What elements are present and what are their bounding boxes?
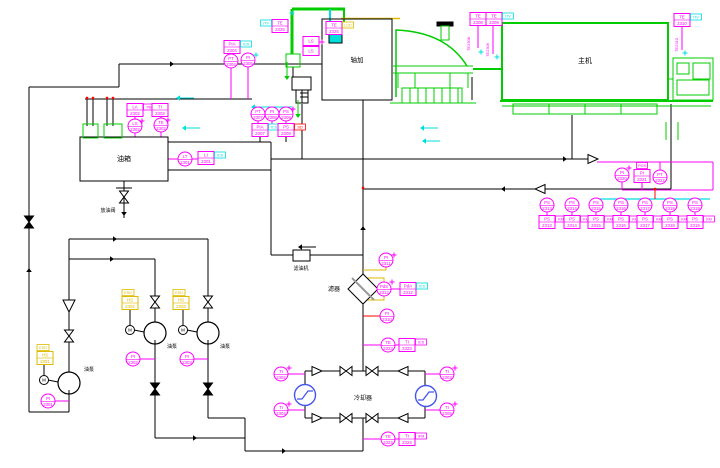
svg-text:PT: PT (228, 56, 234, 61)
instrument-bubble-PI-2301: PI2301 (41, 394, 55, 408)
svg-text:ITV: ITV (505, 15, 511, 19)
heat-exchanger-icon (295, 385, 316, 406)
instrument-bubble-PI-2310: PI2310 (380, 309, 394, 323)
svg-text:2308: 2308 (473, 20, 483, 25)
svg-text:KM: KM (681, 218, 687, 222)
plus-mark (453, 366, 458, 371)
svg-text:2304: 2304 (276, 411, 286, 416)
hand-switch-HS-2301: ESDHS2301 (37, 345, 53, 365)
pipe-line (363, 267, 386, 270)
svg-text:2314: 2314 (567, 223, 577, 228)
label-text: 油泵 (84, 366, 94, 373)
svg-text:2309: 2309 (489, 20, 499, 25)
instrument-box-PS-2309: PS2309SD (278, 124, 306, 137)
instrument-bubble-PT-2304: PT2304 (224, 54, 238, 68)
svg-text:ICS: ICS (418, 341, 425, 345)
svg-text:2324: 2324 (402, 440, 412, 445)
svg-text:PCS: PCS (638, 164, 646, 168)
svg-text:M: M (181, 328, 185, 333)
svg-text:2318: 2318 (665, 206, 675, 211)
svg-text:KM: KM (558, 218, 564, 222)
instrument-box-TI-2302: TI2302 (152, 104, 168, 117)
label-text: 油泵 (220, 343, 230, 350)
plus-mark (390, 280, 395, 285)
svg-text:TE: TE (385, 434, 391, 439)
svg-text:PS: PS (692, 200, 698, 205)
label-text: 油箱 (117, 154, 131, 163)
generator-part (677, 63, 689, 74)
flow-arrow (360, 226, 366, 244)
svg-text:SD: SD (297, 126, 303, 130)
instrument-bubble-TI-2305: TI2305 (440, 403, 454, 417)
shutoff-valve (151, 296, 160, 308)
instrument-box-PI-2321: PI2321PCS (634, 163, 650, 183)
pid-diagram: MMMPT2304PI2305PT2307PI2308PS2309LS2302T… (0, 0, 720, 468)
instrument-box-TE-2308: TE2308 (470, 13, 486, 26)
flow-arrow (420, 125, 438, 131)
svg-text:TE: TE (475, 14, 481, 19)
svg-text:2302: 2302 (276, 375, 286, 380)
svg-text:2307: 2307 (255, 131, 265, 136)
instrument-box-LS: LS (303, 37, 319, 46)
svg-text:2310: 2310 (382, 317, 392, 322)
svg-text:PS: PS (283, 125, 289, 130)
hand-switch-HS-2302: ESDHS2302 (122, 290, 138, 310)
svg-text:PS: PS (667, 200, 673, 205)
svg-text:2313: 2313 (542, 206, 552, 211)
check-valve-icon (398, 414, 408, 423)
plus-mark (479, 50, 484, 55)
instrument-box-TI-2323: TI2323ICS (399, 339, 427, 352)
green-valve-block (286, 54, 300, 67)
svg-text:PI: PI (385, 311, 389, 316)
instrument-box-TE-2326: TE2326LCD (326, 22, 354, 35)
strainer (292, 77, 311, 90)
svg-text:HS: HS (127, 298, 133, 303)
svg-text:PS: PS (642, 217, 648, 222)
flow-arrow (268, 448, 286, 454)
svg-text:TI: TI (405, 340, 409, 345)
instrument-box-PS-2318: PS2318KM (662, 216, 690, 229)
svg-text:PS: PS (593, 200, 599, 205)
label-text: TE2310 (674, 37, 679, 52)
instrument-bubble-TI-2302: TI2302 (274, 367, 288, 381)
shutoff-valve (204, 296, 213, 308)
instrument-bubble-TE-2323: TE2323 (381, 338, 395, 352)
motor-icon: M (179, 326, 188, 335)
shutoff-valve-closed (151, 383, 160, 395)
instrument-bubble-TI-2303: TI2303 (440, 367, 454, 381)
svg-text:PI: PI (246, 55, 250, 60)
svg-text:PIA: PIA (228, 42, 235, 47)
svg-text:KM: KM (656, 218, 662, 222)
flow-arrow (501, 186, 519, 192)
svg-text:2304: 2304 (227, 48, 237, 53)
svg-text:TI: TI (158, 105, 162, 110)
junction-dot (362, 187, 364, 189)
level-switch-box (104, 124, 122, 138)
check-valve-icon (588, 155, 598, 164)
svg-text:PS: PS (544, 217, 550, 222)
svg-text:2312: 2312 (403, 290, 413, 295)
shutoff-valve (340, 367, 352, 376)
svg-text:TE: TE (158, 120, 164, 125)
svg-text:2307: 2307 (253, 115, 263, 120)
instrument-box-PIA-2307: PIA2307ICS (252, 124, 280, 137)
svg-text:PI: PI (384, 255, 388, 260)
svg-text:PIA: PIA (256, 125, 263, 130)
instrument-bubble-PT-2322: PT2322 (653, 170, 667, 184)
flow-arrow (284, 62, 290, 80)
instrument-box-PS-2319: PS2319KM (687, 216, 715, 229)
instrument-box-PIA-2304: PIA2304ICS (224, 41, 252, 54)
instrument-bubble-PdS-2312: PdS2312 (377, 282, 391, 296)
svg-text:PS: PS (618, 200, 624, 205)
instrument-box-PS-2317: PS2317KM (637, 216, 665, 229)
instrument-boxes: PIA2304ICSPIA2307ICSPS2309SDLA2302PBTI23… (127, 13, 715, 446)
shutoff-valve (65, 330, 74, 342)
svg-text:2315: 2315 (591, 223, 601, 228)
svg-text:LCD: LCD (344, 24, 352, 28)
svg-text:2302: 2302 (156, 126, 166, 131)
svg-text:LS: LS (132, 121, 137, 126)
svg-text:2305: 2305 (442, 411, 452, 416)
junction-dot (92, 97, 94, 99)
svg-text:M: M (128, 328, 132, 333)
instrument-bubble-PI-2302: PI2302 (126, 352, 140, 366)
check-valve-icon (312, 414, 322, 423)
instrument-box-TI-2324: TI2324IFM (399, 433, 427, 446)
label-text: 主机 (578, 56, 592, 65)
svg-text:2302: 2302 (130, 127, 140, 132)
motor-icon: M (126, 326, 135, 335)
svg-text:2313: 2313 (542, 223, 552, 228)
svg-text:PS: PS (618, 217, 624, 222)
instrument-bubble-PS-2317: PS2317 (638, 198, 652, 212)
pump-icon (197, 322, 219, 344)
shutoff-valve-closed (204, 383, 213, 395)
plus-mark (290, 11, 295, 16)
svg-text:2302: 2302 (128, 360, 138, 365)
svg-text:IFM: IFM (418, 435, 425, 439)
flow-arrow (422, 138, 440, 144)
drain-funnel-icon (63, 300, 75, 312)
hand-switch-HS-2303: ESDHS2303 (173, 290, 189, 310)
svg-text:PS: PS (569, 217, 575, 222)
svg-text:TI: TI (279, 369, 283, 374)
svg-text:2317: 2317 (640, 223, 650, 228)
svg-text:2301: 2301 (201, 159, 211, 164)
svg-text:ESD: ESD (175, 291, 183, 295)
svg-text:2320: 2320 (617, 176, 627, 181)
flow-arrow (182, 125, 200, 131)
svg-text:ICS: ICS (271, 126, 278, 130)
junction-dot (112, 97, 114, 99)
instrument-bubble-PS-2315: PS2315 (589, 198, 603, 212)
label-text: 冷却器 (354, 394, 372, 402)
svg-text:2302: 2302 (125, 304, 135, 309)
pump-icon (58, 372, 80, 394)
svg-text:HS: HS (178, 298, 184, 303)
pipe-line (187, 330, 197, 332)
check-valve-icon (398, 367, 408, 376)
svg-text:2305: 2305 (243, 61, 253, 66)
plus-mark (683, 51, 688, 56)
junction-dot (654, 188, 656, 190)
svg-text:2301: 2301 (43, 402, 53, 407)
svg-text:2308: 2308 (267, 115, 277, 120)
instrument-bubble-PI-2308: PI2308 (265, 107, 279, 121)
svg-text:2312: 2312 (379, 290, 389, 295)
instrument-bubble-PS-2314: PS2314 (565, 198, 579, 212)
svg-text:2301: 2301 (180, 160, 190, 165)
svg-text:TI: TI (445, 369, 449, 374)
svg-text:2301: 2301 (40, 359, 50, 364)
instrument-bubble-LT-2301: LT2301 (178, 152, 192, 166)
svg-text:PT: PT (255, 109, 261, 114)
svg-text:KM: KM (607, 218, 613, 222)
chimney-cap (437, 22, 453, 26)
label-text: 滤器 (328, 285, 340, 293)
svg-text:2303: 2303 (176, 304, 186, 309)
svg-text:PS: PS (283, 109, 289, 114)
instrument-box-PS-2313: PS2313KM (539, 216, 567, 229)
svg-text:2303: 2303 (442, 375, 452, 380)
instrument-box-LS: LS (303, 47, 319, 56)
pump-icon (144, 322, 166, 344)
svg-text:2303: 2303 (182, 360, 192, 365)
pipe-line (134, 330, 144, 332)
svg-text:PI: PI (270, 109, 274, 114)
instrument-box-PS-2315: PS2315KM (588, 216, 616, 229)
plus-mark (287, 366, 292, 371)
flow-arrow (96, 256, 114, 262)
svg-text:PS: PS (544, 200, 550, 205)
generator-part (693, 63, 710, 79)
svg-text:2309: 2309 (281, 115, 291, 120)
svg-text:2304: 2304 (226, 62, 236, 67)
label-text: 油泵 (167, 343, 177, 350)
svg-text:ICS: ICS (217, 154, 224, 158)
svg-text:2325: 2325 (275, 27, 285, 32)
svg-text:PI: PI (46, 396, 50, 401)
svg-text:LT: LT (183, 154, 188, 159)
plus-mark (287, 402, 292, 407)
instrument-bubble-PS-2319: PS2319 (688, 198, 702, 212)
svg-text:LS: LS (308, 49, 313, 54)
label-text: TE2309 (485, 42, 490, 57)
instrument-bubble-TI-2304: TI2304 (274, 403, 288, 417)
svg-text:2319: 2319 (690, 206, 700, 211)
instrument-box-LI-2301: LI2301ICS (198, 152, 226, 165)
svg-text:TE: TE (491, 14, 497, 19)
svg-text:HS: HS (42, 353, 48, 358)
svg-text:TE: TE (331, 23, 337, 28)
pipe-lines (29, 9, 713, 451)
flow-arrow (298, 244, 316, 250)
svg-text:ICS: ICS (419, 285, 426, 289)
plus-mark (495, 55, 500, 60)
svg-text:2323: 2323 (383, 346, 393, 351)
pumps: MMM (40, 274, 437, 407)
instrument-bubble-PT-2307: PT2307 (251, 107, 265, 121)
label-text: 放油阀 (100, 207, 115, 214)
svg-text:PI: PI (131, 354, 135, 359)
svg-text:TE: TE (385, 340, 391, 345)
svg-text:PB: PB (146, 106, 152, 110)
purifier-box (293, 250, 310, 261)
svg-text:KM: KM (706, 218, 712, 222)
svg-text:TI: TI (279, 405, 283, 410)
label-text: 滤油机 (293, 265, 308, 272)
svg-text:PS: PS (593, 217, 599, 222)
svg-text:2302: 2302 (155, 111, 165, 116)
flow-arrow (549, 156, 567, 162)
flow-arrow (179, 435, 197, 441)
svg-text:ITV: ITV (693, 16, 699, 20)
svg-text:2316: 2316 (616, 223, 626, 228)
instrument-box-PdA-2312: PdA2312ICS (400, 283, 428, 296)
svg-text:TI: TI (445, 405, 449, 410)
check-valve-icon (535, 185, 545, 194)
svg-text:ESD: ESD (39, 346, 47, 350)
shutoff-valve-closed (25, 216, 34, 228)
svg-text:ESD: ESD (124, 291, 132, 295)
svg-text:PI: PI (185, 354, 189, 359)
instrument-box-TE-2325: TE2325ITV (261, 20, 289, 33)
pid-diagram-canvas: MMMPT2304PI2305PT2307PI2308PS2309LS2302T… (0, 0, 720, 468)
instrument-box-PS-2316: PS2316KM (613, 216, 641, 229)
svg-text:PT: PT (657, 172, 663, 177)
svg-text:PS: PS (692, 217, 698, 222)
svg-text:PI: PI (620, 170, 624, 175)
svg-text:M: M (42, 378, 46, 383)
svg-text:LA: LA (132, 105, 137, 110)
svg-text:TI: TI (405, 434, 409, 439)
svg-text:2317: 2317 (640, 206, 650, 211)
pipe-line (48, 380, 58, 382)
instrument-bubble-PI-2303: PI2303 (180, 352, 194, 366)
svg-text:PI: PI (640, 171, 644, 176)
svg-text:PS: PS (642, 200, 648, 205)
junction-dot (86, 97, 88, 99)
junction-dot (106, 97, 108, 99)
instrument-bubble-PS-2316: PS2316 (614, 198, 628, 212)
svg-text:2316: 2316 (616, 206, 626, 211)
instrument-bubble-PS-2318: PS2318 (663, 198, 677, 212)
valves (25, 155, 599, 423)
shutoff-valve (340, 414, 352, 423)
svg-text:LS: LS (308, 39, 313, 44)
svg-text:2318: 2318 (665, 223, 675, 228)
instrument-box-LA-2302: LA2302PB (127, 104, 155, 117)
flow-arrow (99, 236, 117, 242)
instrument-bubble-PI-2311: PI2311 (379, 253, 393, 267)
svg-text:2311: 2311 (381, 261, 391, 266)
flow-arrow (156, 61, 174, 67)
motor-icon: M (40, 376, 49, 385)
svg-text:PdA: PdA (404, 284, 412, 289)
boiler-louver (402, 88, 462, 103)
instrument-bubble-PS-2313: PS2313 (540, 198, 554, 212)
svg-text:2310: 2310 (677, 21, 687, 26)
generator-part (677, 80, 709, 95)
flow-arrow (26, 268, 32, 286)
instrument-bubble-PI-2320: PI2320 (615, 168, 629, 182)
hand-switches: ESDHS2301ESDHS2302ESDHS2303 (37, 290, 189, 365)
svg-text:2315: 2315 (591, 206, 601, 211)
instrument-box-TE-2310: TE2310ITV (674, 14, 702, 27)
level-switch-box (83, 124, 98, 138)
svg-text:2321: 2321 (637, 177, 647, 182)
shutoff-valve (366, 414, 378, 423)
flow-arrow (176, 95, 194, 101)
svg-text:PdS: PdS (380, 284, 388, 289)
svg-text:TE: TE (679, 15, 685, 20)
chimney (441, 26, 449, 40)
svg-text:2314: 2314 (567, 206, 577, 211)
plus-mark (320, 40, 325, 45)
label-text: TE2308 (466, 36, 471, 51)
shutoff-valve (366, 367, 378, 376)
svg-text:2324: 2324 (383, 440, 393, 445)
heat-exchanger-icon (416, 386, 437, 407)
instrument-box-PS-2314: PS2314KM (564, 216, 592, 229)
svg-text:ITV: ITV (263, 22, 269, 26)
svg-text:ICS: ICS (243, 43, 250, 47)
svg-text:PS: PS (569, 200, 575, 205)
svg-text:2309: 2309 (281, 131, 291, 136)
label-text: 轴加 (351, 55, 364, 64)
svg-text:2302: 2302 (130, 111, 140, 116)
svg-text:2326: 2326 (329, 29, 339, 34)
svg-text:2319: 2319 (690, 223, 700, 228)
svg-text:2323: 2323 (402, 346, 412, 351)
boiler-dome (396, 30, 467, 97)
svg-text:LI: LI (204, 153, 208, 158)
check-valve-icon (312, 367, 322, 376)
svg-text:2322: 2322 (655, 178, 665, 183)
instrument-bubble-TE-2324: TE2324 (381, 432, 395, 446)
svg-text:TE: TE (277, 21, 283, 26)
svg-text:PS: PS (667, 217, 673, 222)
instrument-bubble-PI-2305: PI2305 (241, 53, 255, 67)
plus-mark (453, 402, 458, 407)
